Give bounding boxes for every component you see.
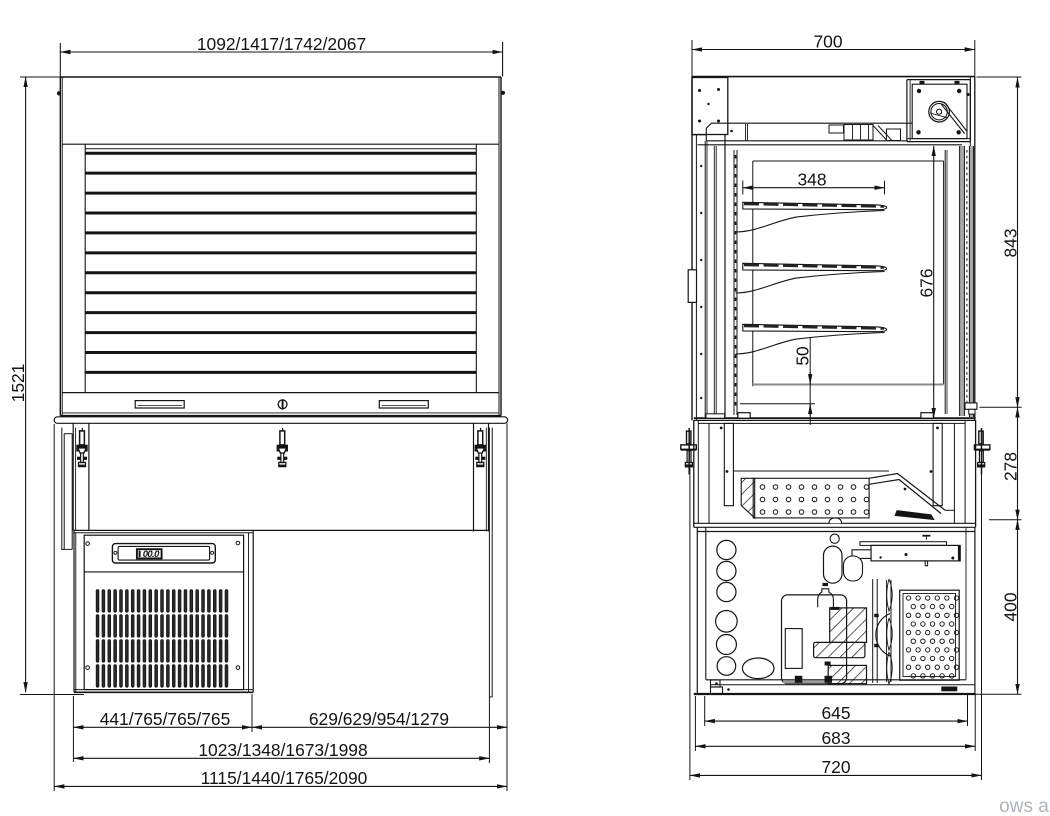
svg-text:676: 676	[916, 268, 936, 297]
svg-text:629/629/954/1279: 629/629/954/1279	[309, 709, 449, 729]
svg-text:348: 348	[797, 169, 826, 189]
svg-text:00.0: 00.0	[143, 549, 160, 560]
svg-text:683: 683	[821, 728, 850, 748]
svg-text:700: 700	[813, 32, 842, 52]
svg-text:1521: 1521	[8, 364, 28, 403]
svg-text:50: 50	[792, 346, 812, 365]
svg-text:720: 720	[821, 757, 850, 777]
svg-text:1023/1348/1673/1998: 1023/1348/1673/1998	[198, 740, 367, 760]
svg-text:1115/1440/1765/2090: 1115/1440/1765/2090	[201, 768, 368, 788]
svg-text:843: 843	[1001, 228, 1021, 257]
svg-text:1092/1417/1742/2067: 1092/1417/1742/2067	[197, 34, 366, 54]
svg-text:ows a: ows a	[999, 796, 1049, 816]
svg-text:441/765/765/765: 441/765/765/765	[100, 709, 231, 729]
svg-text:645: 645	[821, 703, 850, 723]
svg-text:278: 278	[1001, 452, 1021, 481]
svg-text:400: 400	[1001, 592, 1021, 621]
